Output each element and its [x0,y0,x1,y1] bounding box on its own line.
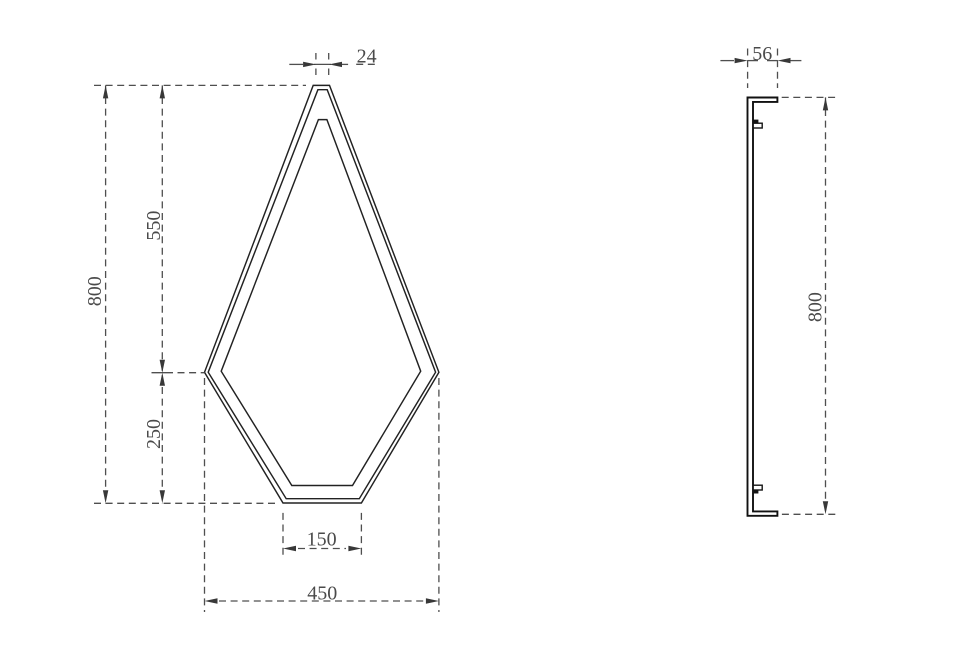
svg-text:24: 24 [357,45,377,67]
svg-text:56: 56 [752,43,772,65]
svg-text:450: 450 [307,582,337,604]
svg-text:250: 250 [143,419,165,449]
svg-text:150: 150 [307,529,337,551]
svg-text:800: 800 [84,276,106,306]
svg-text:550: 550 [143,211,165,241]
svg-text:800: 800 [805,292,827,322]
